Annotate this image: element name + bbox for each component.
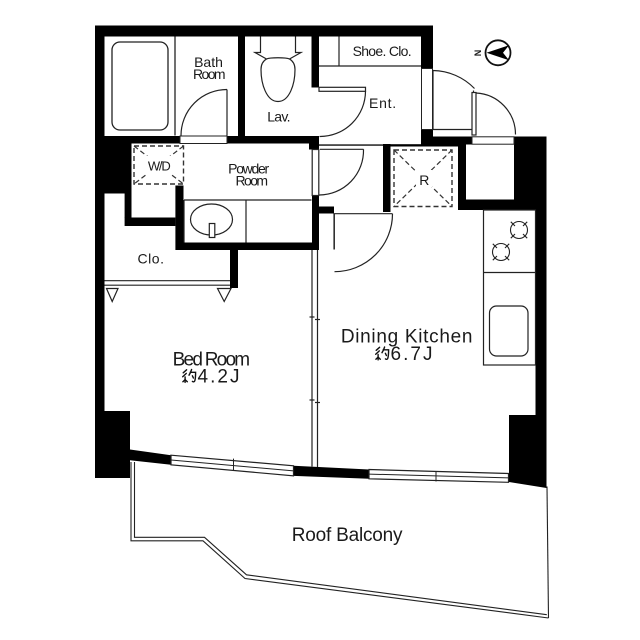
svg-text:6.7J: 6.7J — [391, 344, 435, 365]
svg-text:Roof Balcony: Roof Balcony — [292, 525, 403, 546]
svg-text:Room: Room — [236, 173, 268, 189]
svg-text:R: R — [419, 172, 429, 188]
svg-text:Ent.: Ent. — [369, 95, 397, 111]
svg-text:W/D: W/D — [148, 159, 170, 174]
svg-text:Room: Room — [193, 66, 225, 82]
svg-text:Shoe. Clo.: Shoe. Clo. — [353, 43, 411, 59]
svg-text:4.2J: 4.2J — [198, 367, 242, 388]
svg-text:N: N — [473, 50, 483, 57]
svg-text:Clo.: Clo. — [137, 251, 164, 267]
svg-text:Lav.: Lav. — [267, 109, 290, 125]
